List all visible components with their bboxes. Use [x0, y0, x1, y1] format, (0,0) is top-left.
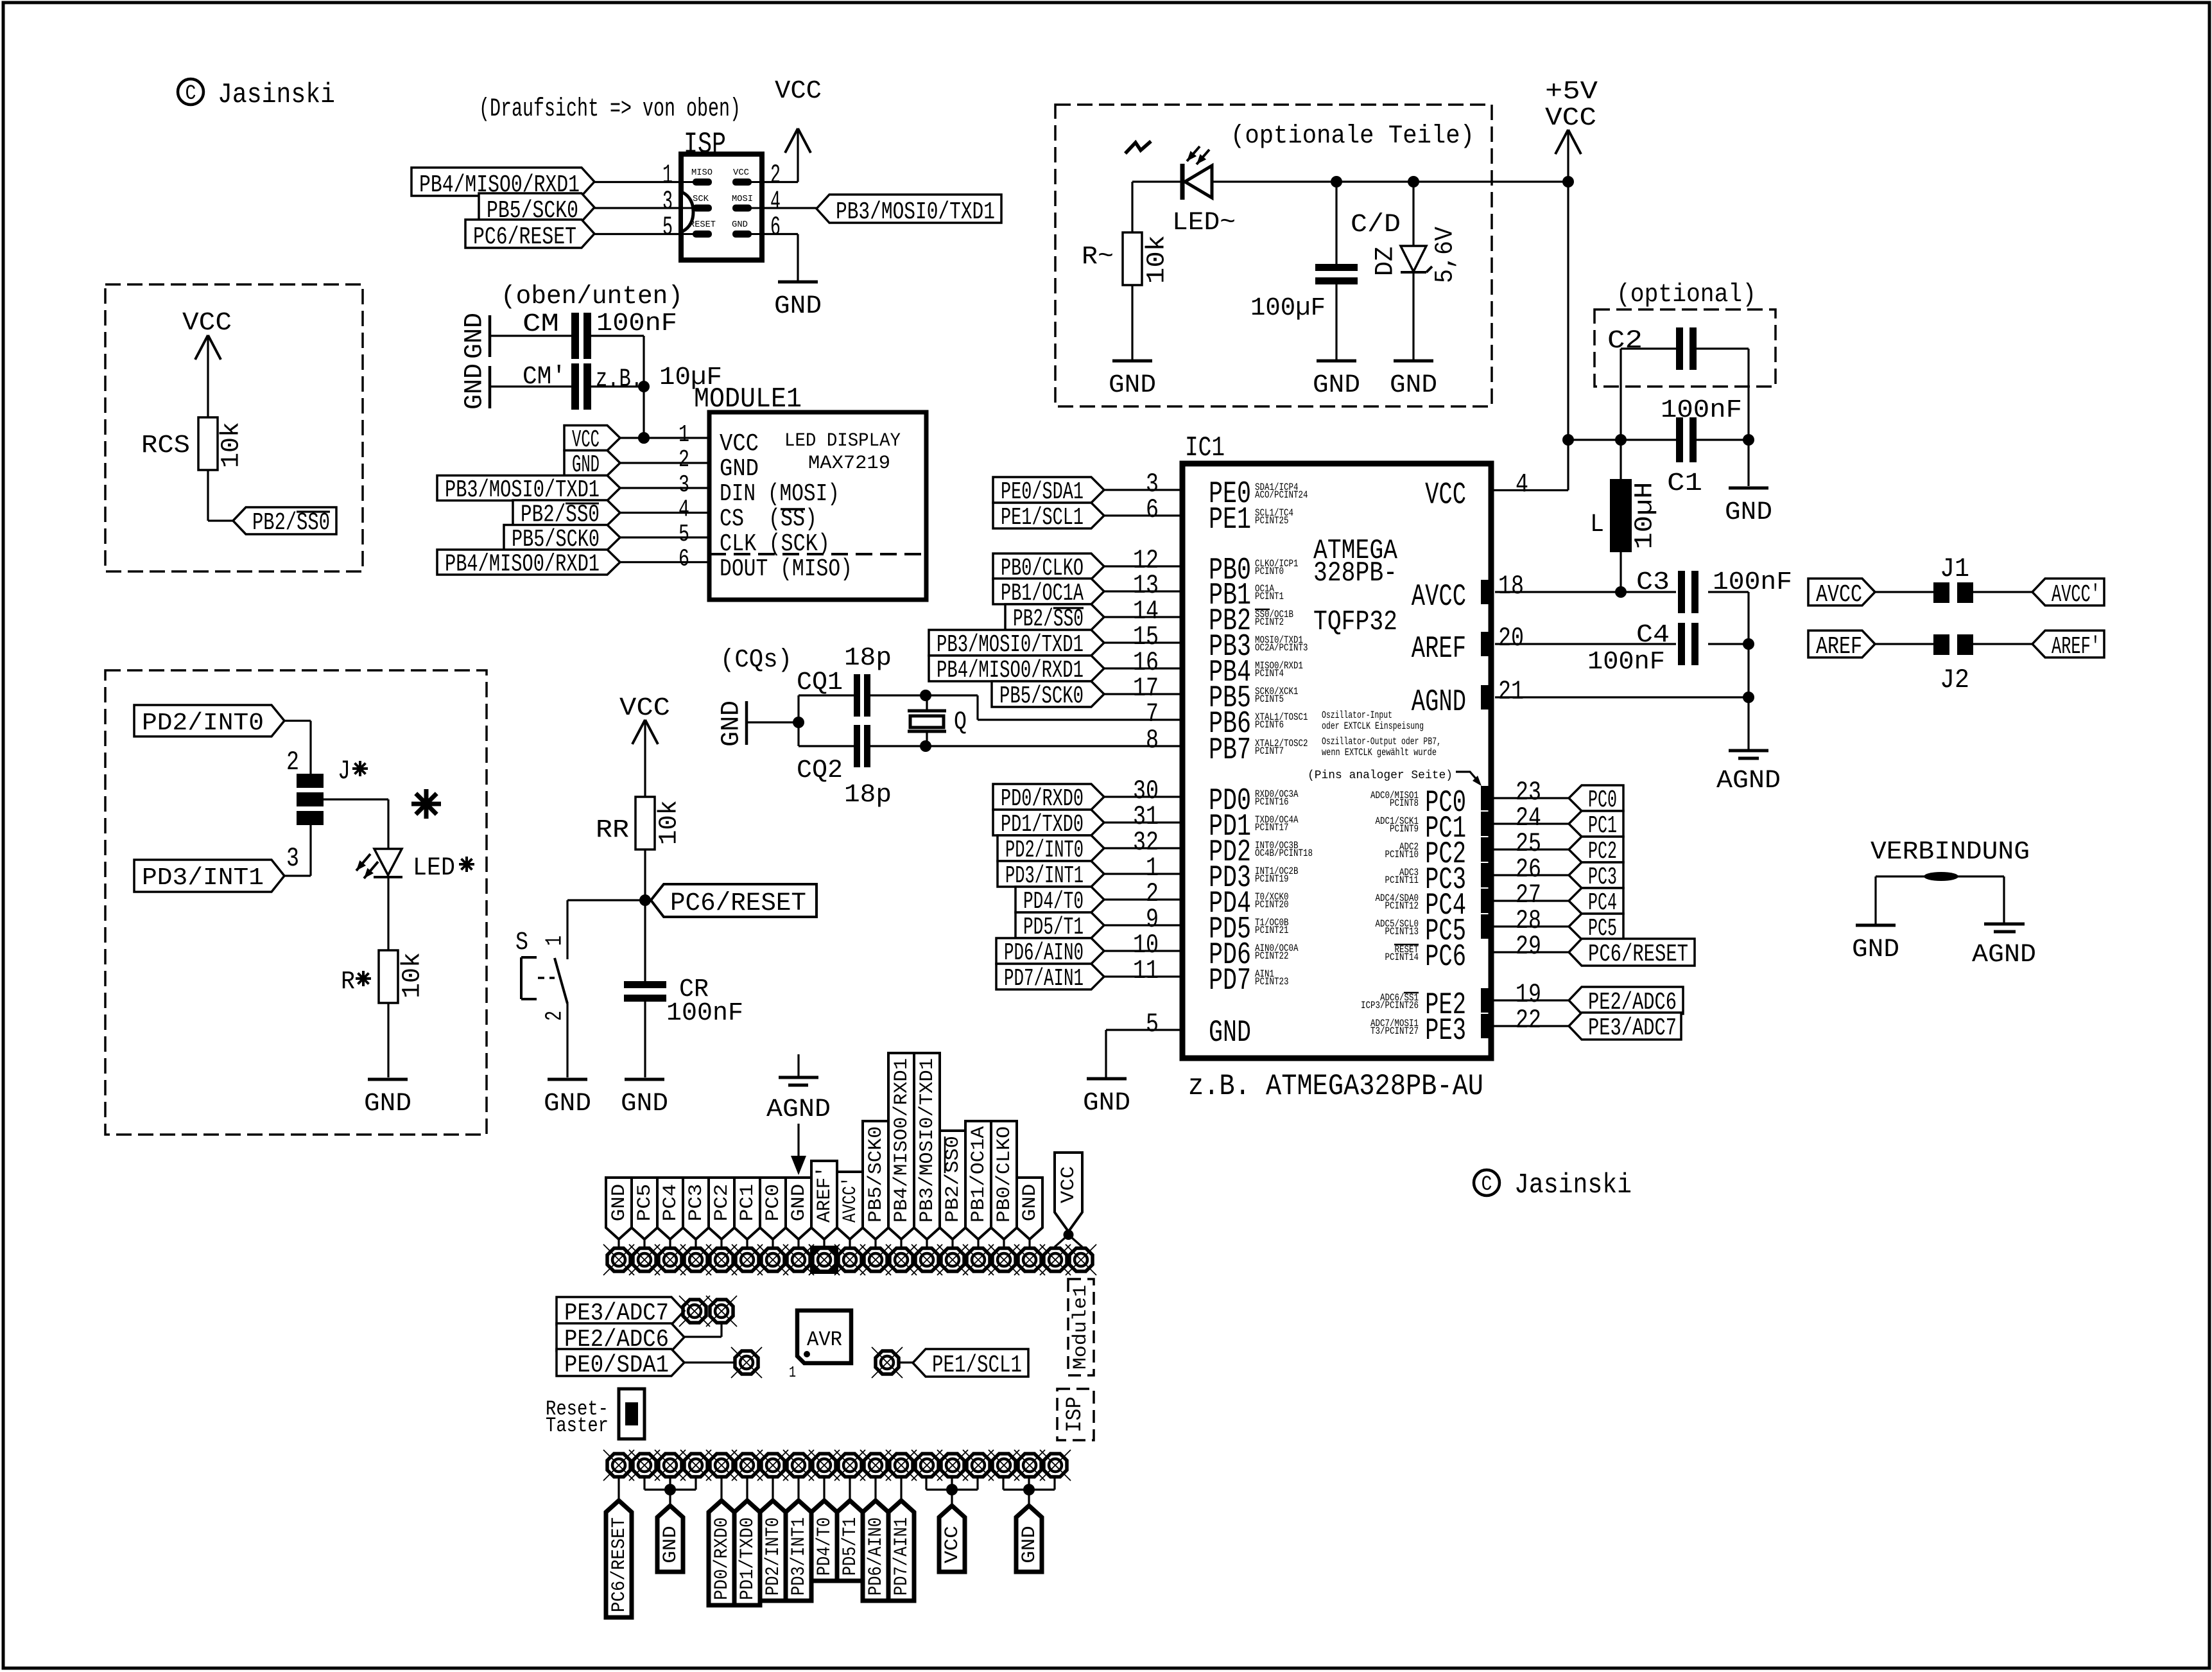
svg-text:PC6/RESET: PC6/RESET	[609, 1517, 630, 1612]
svg-text:AGND: AGND	[766, 1095, 831, 1124]
svg-text:GND: GND	[732, 220, 748, 230]
svg-text:PC6/RESET: PC6/RESET	[473, 223, 576, 251]
svg-text:GND: GND	[1083, 1089, 1130, 1118]
svg-text:100nF: 100nF	[666, 999, 743, 1028]
svg-text:RR: RR	[596, 816, 629, 845]
svg-text:PCINT16: PCINT16	[1255, 796, 1289, 808]
svg-text:C: C	[1482, 1172, 1492, 1196]
svg-text:PB7: PB7	[1209, 733, 1251, 768]
svg-text:ACO/PCINT24: ACO/PCINT24	[1255, 489, 1308, 501]
svg-text:AREF: AREF	[1412, 632, 1466, 666]
svg-text:5: 5	[1146, 1009, 1159, 1040]
svg-text:29: 29	[1516, 931, 1541, 962]
svg-text:GND: GND	[544, 1090, 591, 1119]
svg-text:22: 22	[1516, 1005, 1541, 1036]
svg-text:PC5: PC5	[634, 1184, 656, 1222]
svg-text:PB0/CLKO: PB0/CLKO	[994, 1126, 1015, 1223]
svg-text:PB3/MOSI0/TXD1: PB3/MOSI0/TXD1	[917, 1058, 938, 1223]
svg-text:GND: GND	[1313, 371, 1360, 400]
svg-text:C/D: C/D	[1351, 211, 1401, 239]
svg-text:Module1: Module1	[1070, 1285, 1092, 1370]
svg-text:PCINT0: PCINT0	[1255, 566, 1284, 577]
svg-text:J: J	[338, 756, 350, 787]
svg-text:PD6/AIN0: PD6/AIN0	[865, 1517, 887, 1596]
svg-text:C1: C1	[1667, 469, 1702, 498]
svg-text:(Pins analoger Seite): (Pins analoger Seite)	[1308, 769, 1453, 782]
svg-text:PCINT22: PCINT22	[1255, 950, 1289, 962]
svg-text:PD2/INT0: PD2/INT0	[142, 710, 264, 737]
svg-text:wenn EXTCLK gewählt wurde: wenn EXTCLK gewählt wurde	[1322, 747, 1437, 758]
svg-text:PCINT13: PCINT13	[1385, 926, 1419, 937]
svg-text:PE3: PE3	[1425, 1014, 1466, 1049]
svg-text:10k: 10k	[218, 422, 246, 468]
svg-text:MAX7219: MAX7219	[808, 453, 890, 475]
svg-text:AGND: AGND	[1412, 685, 1466, 720]
svg-text:PD3/INT1: PD3/INT1	[788, 1517, 810, 1596]
svg-text:AREF': AREF'	[2052, 633, 2100, 661]
svg-text:10k: 10k	[1143, 235, 1172, 284]
svg-text:Jasinski: Jasinski	[218, 79, 335, 111]
svg-text:RCS: RCS	[141, 431, 190, 460]
svg-text:100nF: 100nF	[596, 309, 677, 338]
svg-text:VCC: VCC	[733, 168, 749, 178]
svg-text:(optional): (optional)	[1616, 281, 1756, 309]
svg-text:C4: C4	[1636, 621, 1670, 650]
svg-text:PE0/SDA1: PE0/SDA1	[564, 1352, 669, 1379]
svg-text:VCC: VCC	[775, 77, 822, 106]
svg-text:GND: GND	[621, 1090, 668, 1119]
svg-text:GND: GND	[1109, 371, 1156, 400]
svg-text:L: L	[1590, 510, 1604, 539]
svg-text:MISO: MISO	[691, 168, 713, 178]
svg-text:PC0: PC0	[763, 1184, 784, 1222]
svg-text:PB1/OC1A: PB1/OC1A	[968, 1126, 990, 1223]
svg-text:VCC: VCC	[1058, 1166, 1080, 1203]
svg-text:Oszillator-Input: Oszillator-Input	[1322, 710, 1392, 721]
svg-text:6: 6	[678, 546, 689, 573]
svg-text:VCC: VCC	[1425, 478, 1466, 513]
svg-text:PB5/SCK0: PB5/SCK0	[999, 683, 1084, 710]
svg-text:PCINT19: PCINT19	[1255, 873, 1289, 885]
svg-text:PCINT2: PCINT2	[1255, 616, 1284, 628]
svg-text:5,6V: 5,6V	[1431, 227, 1460, 283]
svg-text:PD2/INT0: PD2/INT0	[763, 1517, 784, 1596]
svg-text:GND: GND	[1019, 1184, 1041, 1222]
svg-text:SCK: SCK	[693, 194, 709, 204]
svg-text:PCINT1: PCINT1	[1255, 591, 1284, 602]
svg-text:2: 2	[286, 747, 299, 778]
svg-text:GND: GND	[461, 363, 490, 410]
svg-text:PB4/MISO0/RXD1: PB4/MISO0/RXD1	[445, 551, 600, 579]
svg-text:4: 4	[1516, 469, 1528, 500]
svg-text:PC2: PC2	[711, 1184, 733, 1222]
svg-text:PCINT10: PCINT10	[1385, 849, 1419, 860]
svg-text:PE3/ADC7: PE3/ADC7	[1588, 1015, 1677, 1042]
svg-text:PE1/SCL1: PE1/SCL1	[932, 1352, 1022, 1379]
svg-text:AREF': AREF'	[814, 1166, 836, 1223]
svg-text:VCC: VCC	[619, 694, 670, 723]
svg-text:TQFP32: TQFP32	[1313, 606, 1397, 638]
svg-text:GND: GND	[1852, 936, 1899, 964]
svg-text:VCC: VCC	[942, 1526, 963, 1563]
svg-text:Jasinski: Jasinski	[1514, 1169, 1632, 1201]
svg-text:3: 3	[678, 471, 689, 499]
svg-text:(oben/unten): (oben/unten)	[501, 283, 683, 311]
svg-text:R: R	[341, 968, 355, 997]
svg-text:Q: Q	[954, 708, 967, 737]
svg-text:OC4B/PCINT18: OC4B/PCINT18	[1255, 848, 1313, 859]
svg-text:PB2/SS0: PB2/SS0	[252, 509, 330, 537]
svg-text:DOUT (MISO): DOUT (MISO)	[720, 555, 852, 583]
svg-text:J1: J1	[1940, 553, 1969, 584]
svg-text:PE1: PE1	[1209, 503, 1251, 537]
svg-text:AGND: AGND	[1972, 941, 2036, 970]
svg-text:GND: GND	[1019, 1526, 1041, 1563]
svg-text:3: 3	[286, 843, 299, 874]
svg-text:328PB-: 328PB-	[1313, 557, 1397, 589]
svg-text:LED: LED	[413, 854, 455, 883]
svg-text:PCINT23: PCINT23	[1255, 976, 1289, 988]
svg-text:5: 5	[678, 521, 689, 548]
svg-text:AVCC: AVCC	[1412, 580, 1466, 614]
svg-text:PCINT8: PCINT8	[1390, 797, 1419, 809]
svg-text:T3/PCINT27: T3/PCINT27	[1370, 1025, 1419, 1037]
svg-text:PD1/TXD0: PD1/TXD0	[737, 1517, 759, 1600]
svg-text:C: C	[186, 82, 196, 105]
svg-text:GND: GND	[461, 313, 490, 359]
svg-text:CQ1: CQ1	[797, 668, 843, 697]
svg-text:PE1/SCL1: PE1/SCL1	[1001, 504, 1084, 532]
svg-text:ISP: ISP	[1063, 1397, 1087, 1433]
svg-text:PC6: PC6	[1425, 940, 1466, 975]
svg-text:PCINT5: PCINT5	[1255, 693, 1284, 705]
svg-text:AREF: AREF	[1816, 633, 1862, 661]
svg-text:PC4: PC4	[660, 1184, 682, 1222]
svg-text:1: 1	[789, 1364, 796, 1382]
svg-text:PD7: PD7	[1209, 964, 1251, 998]
svg-text:PD4/T0: PD4/T0	[814, 1517, 836, 1576]
svg-text:PCINT20: PCINT20	[1255, 899, 1289, 910]
svg-text:20: 20	[1498, 623, 1524, 654]
svg-text:100nF: 100nF	[1713, 568, 1792, 597]
svg-text:oder EXTCLK Einspeisung: oder EXTCLK Einspeisung	[1322, 720, 1424, 732]
svg-text:z.B. ATMEGA328PB-AU: z.B. ATMEGA328PB-AU	[1188, 1070, 1483, 1103]
svg-text:AVCC': AVCC'	[840, 1177, 861, 1223]
svg-text:(optionale Teile): (optionale Teile)	[1231, 122, 1474, 151]
svg-text:100µF: 100µF	[1250, 294, 1326, 323]
svg-text:100nF: 100nF	[1661, 396, 1742, 425]
svg-text:10µH: 10µH	[1631, 482, 1660, 550]
svg-text:10k: 10k	[655, 800, 684, 845]
svg-text:GND: GND	[660, 1526, 682, 1563]
svg-text:C2: C2	[1607, 327, 1643, 356]
svg-text:RESET: RESET	[689, 220, 716, 230]
svg-text:Oszillator-Output oder PB7,: Oszillator-Output oder PB7,	[1322, 736, 1441, 747]
svg-text:Taster: Taster	[546, 1414, 609, 1438]
svg-text:AVCC: AVCC	[1816, 581, 1862, 609]
svg-text:MOSI: MOSI	[732, 194, 753, 204]
svg-text:PCINT11: PCINT11	[1385, 875, 1419, 886]
svg-text:2: 2	[678, 446, 689, 474]
svg-text:PC6/RESET: PC6/RESET	[670, 889, 806, 918]
svg-text:ICP3/PCINT26: ICP3/PCINT26	[1361, 1000, 1419, 1011]
svg-text:IC1: IC1	[1185, 432, 1225, 464]
svg-text:GND: GND	[609, 1184, 630, 1222]
svg-text:18p: 18p	[844, 644, 892, 673]
svg-text:GND: GND	[720, 455, 759, 483]
svg-text:PB5/SCK0: PB5/SCK0	[865, 1126, 887, 1223]
svg-text:18p: 18p	[844, 781, 892, 810]
svg-text:PC1: PC1	[737, 1184, 759, 1222]
svg-text:+5V: +5V	[1545, 78, 1598, 107]
svg-text:10k: 10k	[399, 952, 428, 998]
svg-text:PD0/RXD0: PD0/RXD0	[711, 1517, 733, 1600]
svg-text:21: 21	[1498, 676, 1524, 707]
svg-text:R~: R~	[1082, 243, 1114, 272]
svg-text:CM: CM	[523, 310, 559, 339]
svg-text:VCC: VCC	[1545, 104, 1596, 133]
svg-text:VERBINDUNG: VERBINDUNG	[1871, 838, 2030, 867]
svg-text:6: 6	[1146, 494, 1159, 525]
svg-text:LED DISPLAY: LED DISPLAY	[784, 430, 901, 452]
svg-text:VCC: VCC	[720, 430, 759, 458]
svg-text:PCINT14: PCINT14	[1385, 952, 1419, 963]
svg-text:CM': CM'	[523, 363, 566, 392]
svg-text:8: 8	[1146, 725, 1159, 756]
svg-text:CQ2: CQ2	[797, 756, 843, 785]
svg-text:DZ: DZ	[1372, 247, 1401, 276]
svg-text:100nF: 100nF	[1587, 648, 1665, 677]
svg-text:6: 6	[770, 212, 781, 243]
svg-text:AGND: AGND	[1716, 767, 1781, 796]
svg-text:LED~: LED~	[1172, 209, 1236, 238]
svg-text:PCINT7: PCINT7	[1255, 745, 1284, 757]
svg-text:PD7/AIN1: PD7/AIN1	[1004, 965, 1084, 993]
svg-text:J2: J2	[1940, 665, 1969, 695]
svg-text:GND: GND	[718, 701, 747, 747]
svg-text:VCC: VCC	[182, 309, 232, 338]
svg-text:PCINT21: PCINT21	[1255, 925, 1289, 936]
svg-text:18: 18	[1498, 571, 1524, 602]
svg-text:PC3: PC3	[686, 1184, 707, 1222]
svg-text:PCINT12: PCINT12	[1385, 900, 1419, 912]
svg-text:PB3/MOSI0/TXD1: PB3/MOSI0/TXD1	[836, 198, 995, 226]
svg-text:PB4/MISO0/RXD1: PB4/MISO0/RXD1	[891, 1058, 913, 1223]
svg-text:(CQs): (CQs)	[720, 646, 792, 675]
svg-text:AVCC': AVCC'	[2052, 581, 2100, 609]
svg-text:PCINT9: PCINT9	[1390, 823, 1419, 835]
svg-text:PCINT4: PCINT4	[1255, 668, 1284, 679]
svg-text:GND: GND	[1209, 1016, 1251, 1050]
svg-text:S: S	[515, 928, 528, 957]
svg-text:2: 2	[542, 1011, 568, 1021]
svg-text:AVR: AVR	[807, 1328, 842, 1352]
svg-text:PD7/AIN1: PD7/AIN1	[891, 1517, 913, 1596]
svg-text:1: 1	[678, 421, 689, 449]
svg-text:C3: C3	[1636, 568, 1670, 597]
svg-text:PC6/RESET: PC6/RESET	[1588, 941, 1688, 968]
svg-text:CLK (SCK): CLK (SCK)	[720, 530, 830, 558]
svg-text:PD3/INT1: PD3/INT1	[142, 864, 264, 892]
svg-text:5: 5	[662, 212, 673, 243]
svg-text:1: 1	[542, 936, 568, 946]
svg-text:11: 11	[1133, 955, 1159, 986]
svg-text:GND: GND	[788, 1184, 810, 1222]
svg-text:z.B.: z.B.	[596, 365, 643, 394]
svg-text:DIN (MOSI): DIN (MOSI)	[720, 480, 840, 508]
svg-text:PCINT6: PCINT6	[1255, 719, 1284, 731]
svg-text:PD5/T1: PD5/T1	[840, 1517, 861, 1576]
svg-text:GND: GND	[1725, 498, 1772, 527]
svg-text:OC2A/PCINT3: OC2A/PCINT3	[1255, 642, 1308, 654]
svg-text:GND: GND	[364, 1090, 411, 1119]
svg-text:PCINT17: PCINT17	[1255, 822, 1289, 833]
svg-text:4: 4	[678, 496, 689, 524]
svg-text:PCINT25: PCINT25	[1255, 515, 1289, 527]
svg-text:GND: GND	[1390, 371, 1437, 400]
svg-text:GND: GND	[774, 292, 822, 321]
svg-text:(Draufsicht => von oben): (Draufsicht => von oben)	[479, 95, 741, 124]
